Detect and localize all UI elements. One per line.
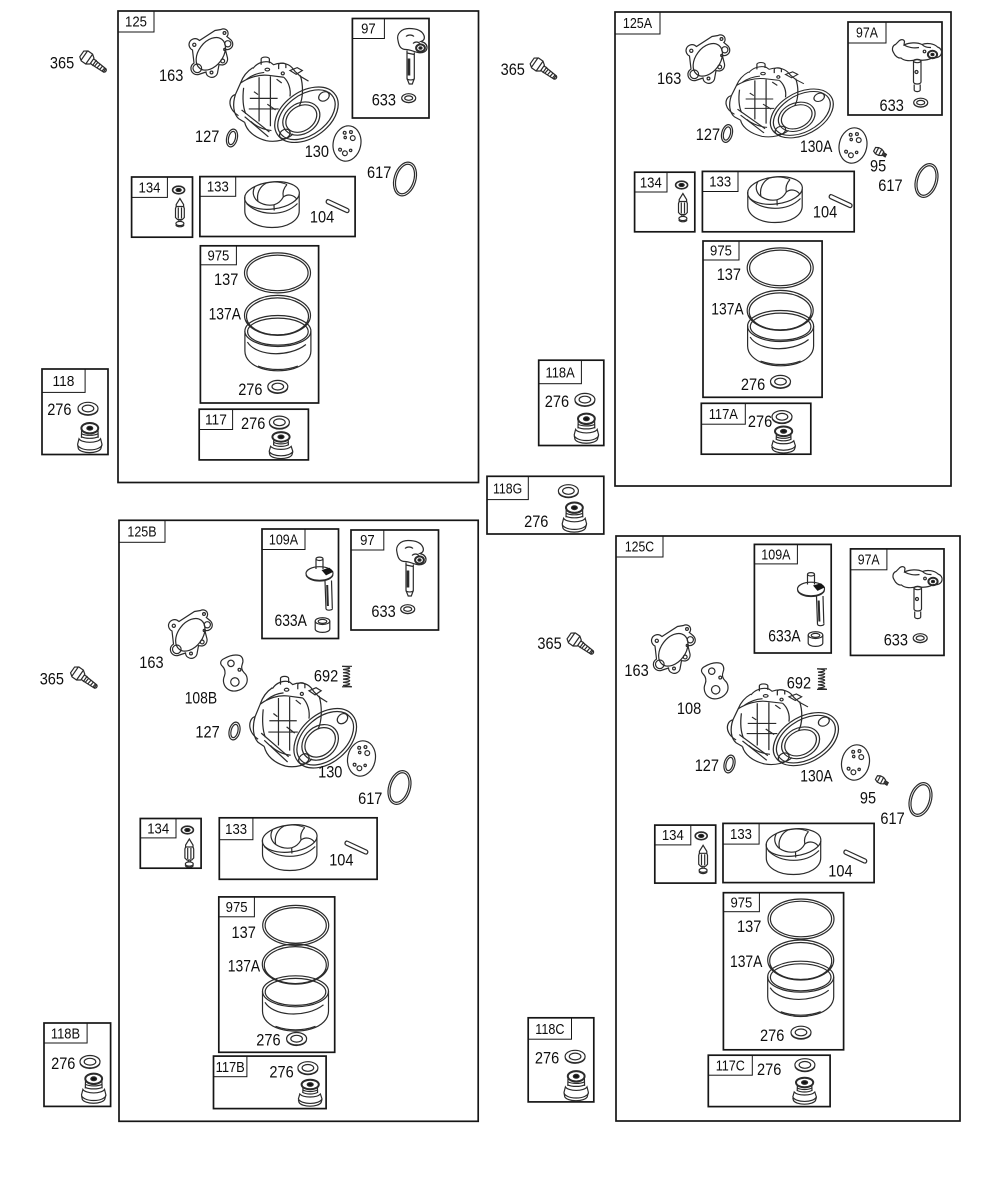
svg-text:134: 134 — [662, 828, 684, 844]
svg-text:130A: 130A — [800, 138, 832, 156]
svg-text:133: 133 — [730, 827, 752, 843]
svg-text:125B: 125B — [127, 525, 156, 541]
svg-text:975: 975 — [226, 900, 248, 916]
svg-text:276: 276 — [741, 376, 765, 394]
svg-text:104: 104 — [310, 209, 334, 227]
svg-text:633: 633 — [372, 92, 396, 110]
svg-text:117B: 117B — [216, 1059, 245, 1076]
svg-text:365: 365 — [50, 55, 74, 73]
svg-text:117A: 117A — [709, 406, 738, 423]
svg-text:127: 127 — [195, 723, 219, 741]
svg-text:97: 97 — [361, 22, 376, 38]
svg-text:97: 97 — [360, 533, 375, 549]
svg-text:134: 134 — [147, 821, 169, 837]
svg-text:133: 133 — [207, 180, 229, 196]
svg-text:97A: 97A — [858, 553, 880, 569]
svg-text:633: 633 — [880, 97, 904, 115]
svg-text:617: 617 — [878, 177, 902, 195]
svg-text:163: 163 — [657, 70, 681, 88]
svg-text:276: 276 — [524, 513, 548, 531]
svg-text:163: 163 — [139, 654, 163, 672]
svg-text:137A: 137A — [730, 953, 762, 971]
svg-text:130: 130 — [305, 143, 329, 161]
svg-text:127: 127 — [695, 757, 719, 775]
svg-text:365: 365 — [501, 61, 525, 79]
svg-text:108B: 108B — [185, 690, 217, 708]
svg-text:633: 633 — [884, 632, 908, 650]
svg-text:118B: 118B — [51, 1025, 80, 1042]
svg-text:130A: 130A — [800, 768, 832, 786]
svg-text:276: 276 — [535, 1050, 559, 1068]
svg-text:133: 133 — [709, 175, 731, 191]
svg-text:617: 617 — [880, 810, 904, 828]
svg-text:276: 276 — [545, 393, 569, 411]
svg-text:137A: 137A — [209, 305, 241, 323]
svg-text:137A: 137A — [711, 300, 743, 318]
svg-text:276: 276 — [757, 1061, 781, 1079]
svg-text:95: 95 — [870, 158, 886, 176]
svg-text:125: 125 — [125, 15, 147, 31]
svg-text:975: 975 — [710, 244, 732, 260]
svg-text:276: 276 — [760, 1027, 784, 1045]
svg-text:276: 276 — [238, 381, 262, 399]
svg-text:97A: 97A — [856, 26, 878, 42]
svg-text:133: 133 — [225, 822, 247, 838]
svg-text:125A: 125A — [623, 16, 652, 32]
svg-text:276: 276 — [748, 413, 772, 431]
svg-text:118A: 118A — [546, 364, 575, 381]
svg-text:276: 276 — [269, 1064, 293, 1082]
svg-text:137: 137 — [214, 271, 238, 289]
svg-text:104: 104 — [329, 852, 353, 870]
svg-text:125C: 125C — [625, 540, 654, 556]
svg-text:276: 276 — [241, 415, 265, 433]
svg-text:108: 108 — [677, 700, 701, 718]
svg-text:975: 975 — [207, 249, 229, 265]
svg-text:130: 130 — [318, 763, 342, 781]
svg-text:163: 163 — [624, 662, 648, 680]
svg-text:617: 617 — [367, 164, 391, 182]
svg-text:633: 633 — [371, 603, 395, 621]
svg-text:137: 137 — [717, 266, 741, 284]
svg-text:633A: 633A — [275, 612, 307, 630]
svg-text:617: 617 — [358, 790, 382, 808]
svg-text:118G: 118G — [493, 480, 522, 497]
svg-text:137: 137 — [737, 918, 761, 936]
svg-text:127: 127 — [696, 126, 720, 144]
svg-text:127: 127 — [195, 128, 219, 146]
svg-text:109A: 109A — [269, 532, 298, 549]
svg-text:118C: 118C — [535, 1021, 564, 1038]
svg-text:633A: 633A — [768, 628, 800, 646]
svg-text:104: 104 — [828, 862, 852, 880]
svg-text:692: 692 — [787, 675, 811, 693]
svg-text:365: 365 — [40, 670, 64, 688]
svg-text:975: 975 — [730, 895, 752, 911]
svg-text:163: 163 — [159, 67, 183, 85]
svg-text:118: 118 — [53, 374, 75, 390]
svg-text:95: 95 — [860, 789, 876, 807]
svg-text:692: 692 — [314, 667, 338, 685]
svg-text:117C: 117C — [716, 1058, 745, 1075]
svg-text:276: 276 — [51, 1055, 75, 1073]
svg-text:365: 365 — [537, 635, 561, 653]
svg-text:117: 117 — [205, 413, 227, 429]
svg-text:276: 276 — [47, 401, 71, 419]
svg-text:137A: 137A — [228, 958, 260, 976]
svg-text:276: 276 — [256, 1032, 280, 1050]
svg-text:134: 134 — [640, 175, 662, 191]
svg-text:104: 104 — [813, 204, 837, 222]
svg-text:134: 134 — [139, 180, 161, 196]
svg-text:137: 137 — [232, 924, 256, 942]
svg-text:109A: 109A — [761, 547, 790, 564]
